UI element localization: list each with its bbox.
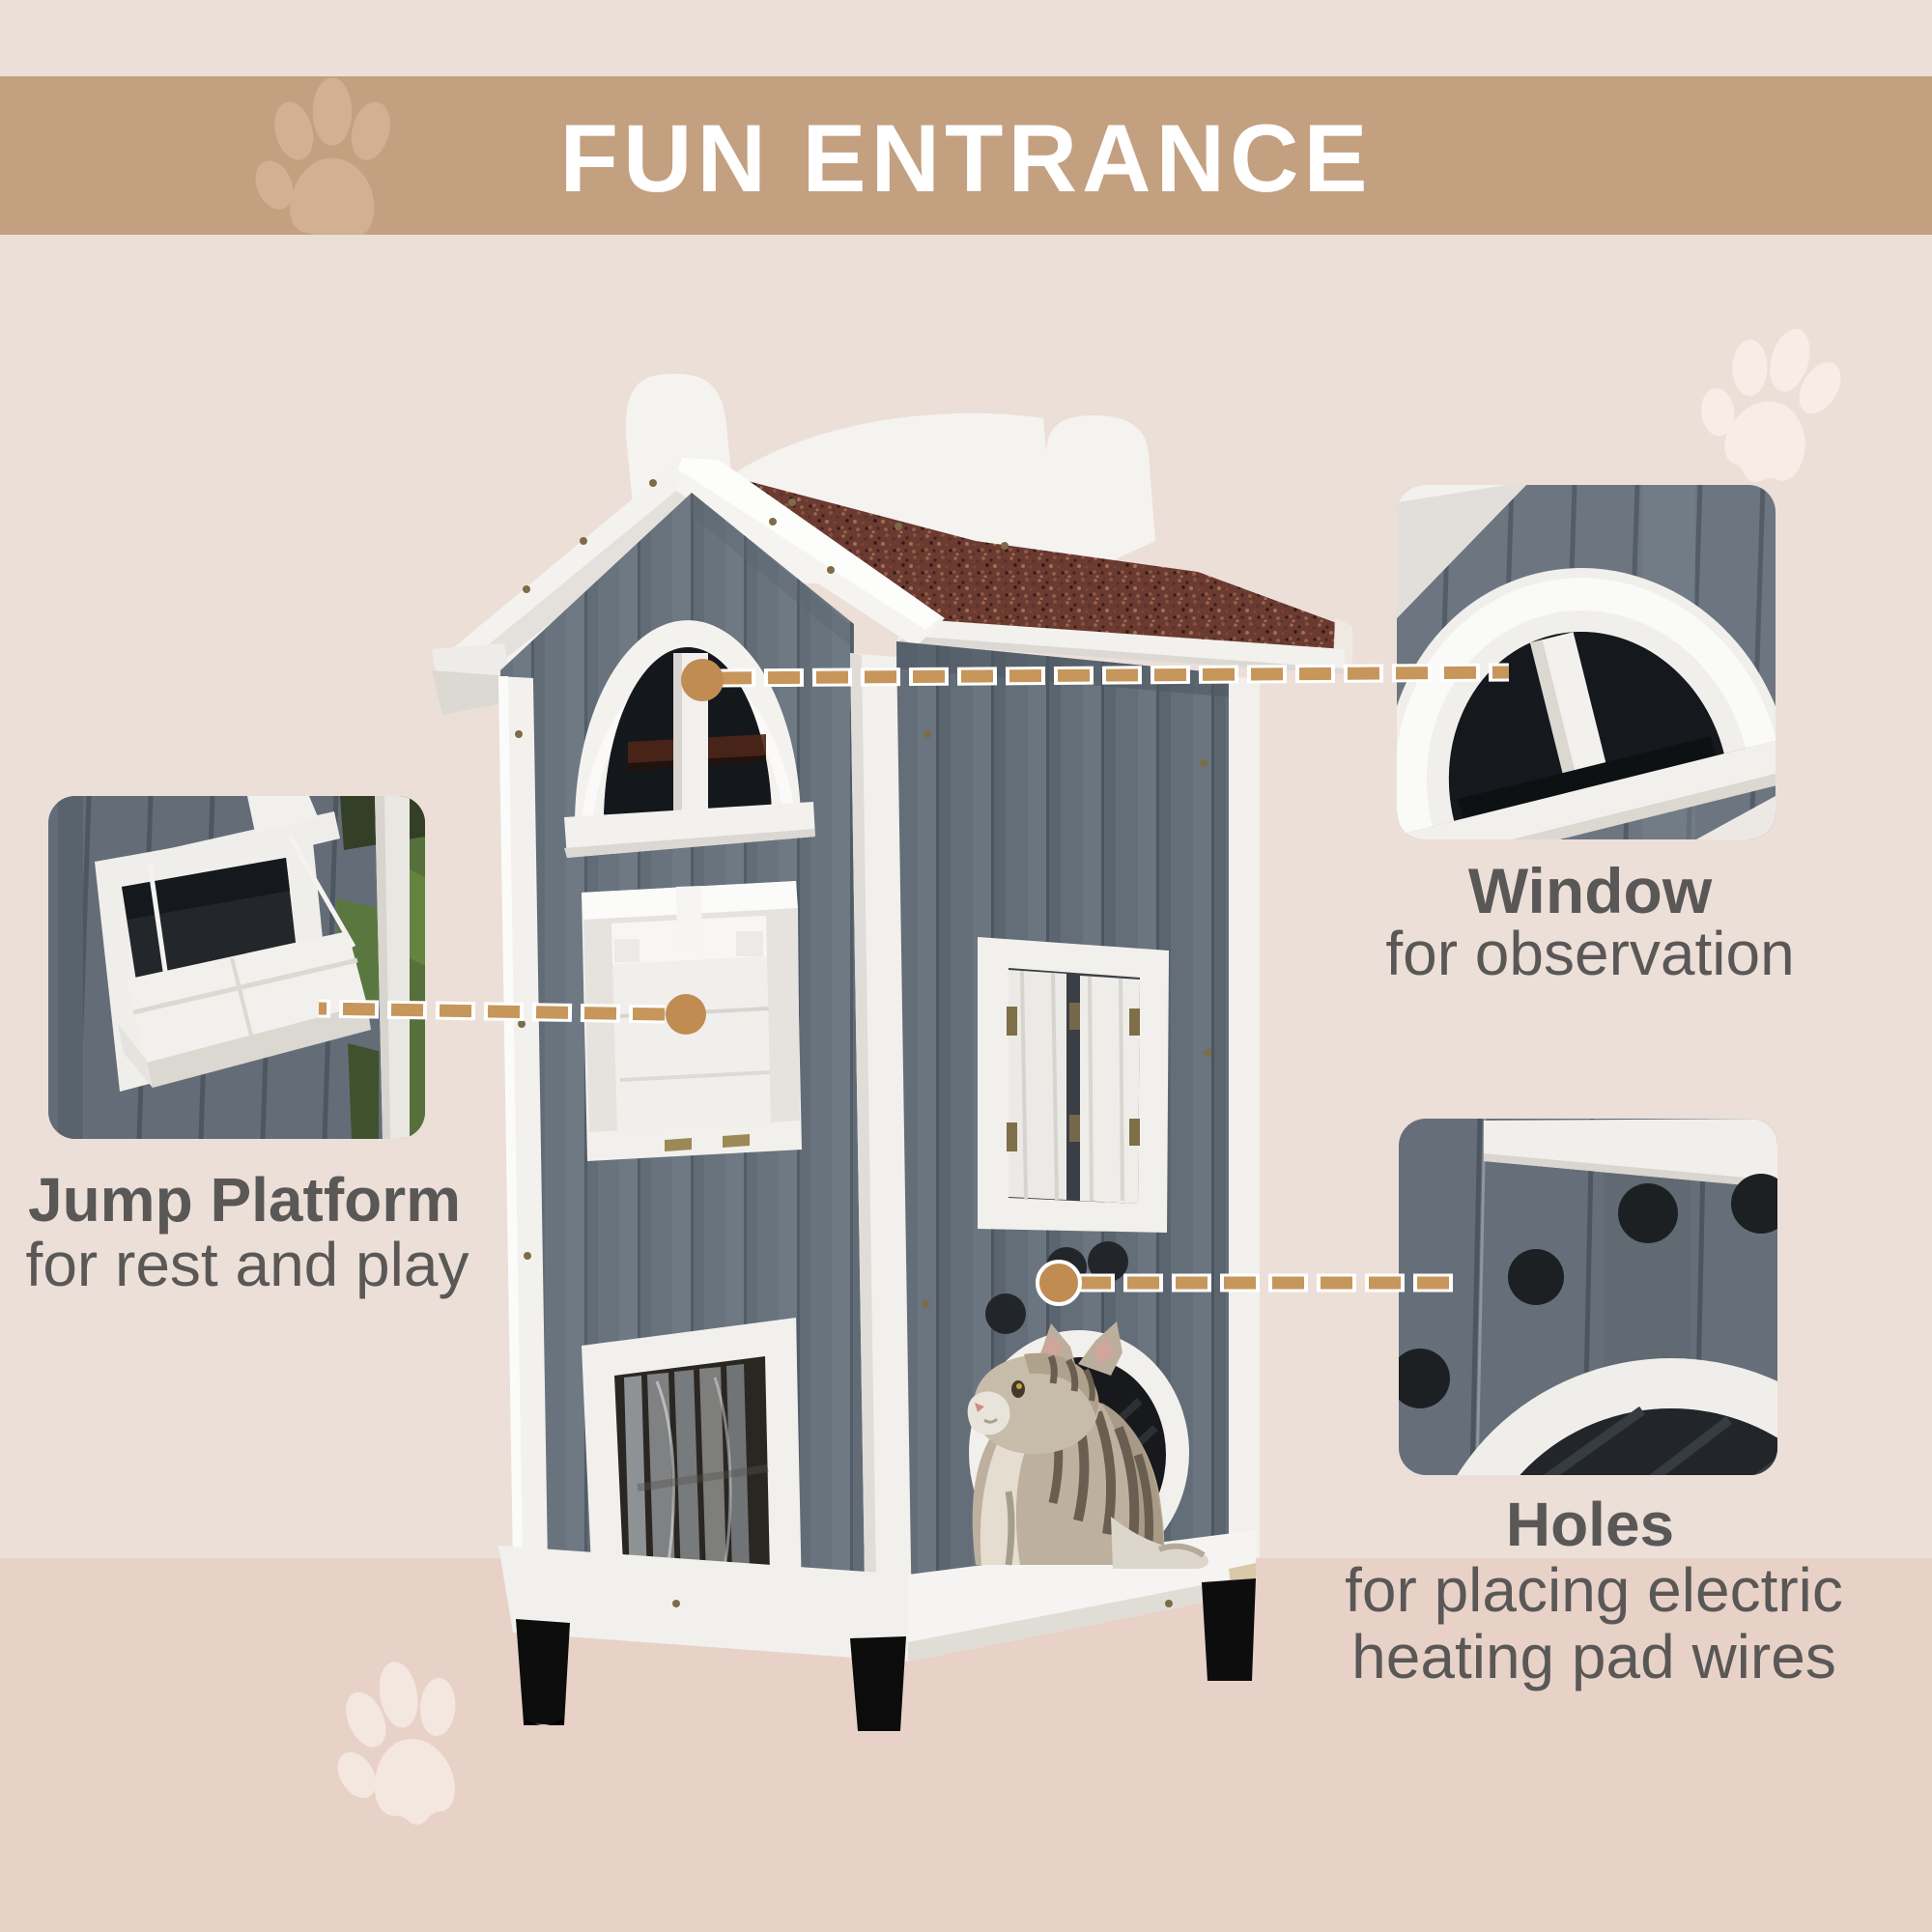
- svg-text:for observation: for observation: [1385, 919, 1794, 988]
- svg-text:for placing electric: for placing electric: [1345, 1555, 1843, 1625]
- svg-text:FUN ENTRANCE: FUN ENTRANCE: [560, 104, 1373, 212]
- svg-text:for rest and play: for rest and play: [26, 1230, 469, 1299]
- svg-text:Window: Window: [1468, 855, 1713, 926]
- svg-text:Holes: Holes: [1506, 1490, 1674, 1559]
- svg-text:heating pad wires: heating pad wires: [1351, 1622, 1836, 1691]
- svg-text:Jump Platform: Jump Platform: [28, 1165, 461, 1235]
